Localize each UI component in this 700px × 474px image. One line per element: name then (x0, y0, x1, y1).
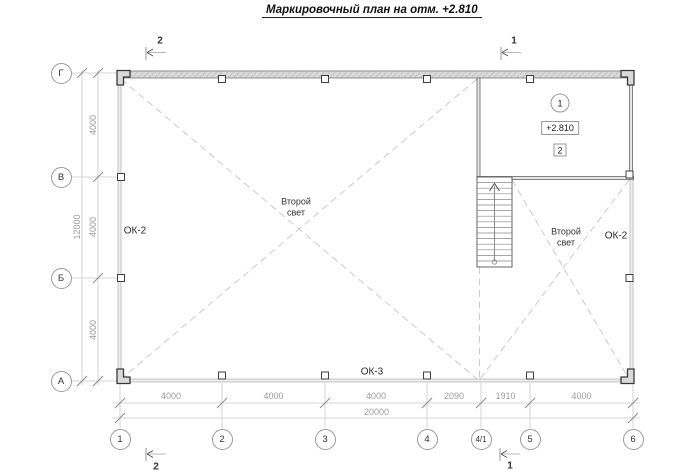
dim-left-seg-3: 4000 (88, 319, 98, 339)
axis-row-a: А (51, 371, 72, 392)
axis-col-1: 1 (110, 429, 131, 450)
dim-left-seg-2: 4000 (88, 217, 98, 237)
drawing-title: Маркировочный план на отм. +2.810 (262, 4, 482, 18)
section-arrow-top-left-icon (146, 47, 166, 60)
dim-bottom-seg-1: 4000 (161, 391, 181, 401)
section-number-top-right: 1 (511, 36, 517, 47)
section-arrow-bottom-left-icon (146, 448, 166, 461)
window-label-ok3: ОК-3 (361, 366, 384, 377)
plan-linework (0, 0, 700, 474)
dim-bottom-seg-3: 4000 (366, 391, 386, 401)
axis-col-5: 5 (520, 429, 541, 450)
dim-bottom-seg-4: 2090 (444, 391, 464, 401)
section-number-top-left: 2 (157, 36, 163, 47)
floor-plan-drawing: Маркировочный план на отм. +2.810 2 1 2 … (0, 0, 700, 474)
top-wall (118, 71, 634, 78)
section-arrow-top-right-icon (501, 47, 521, 60)
dim-left-total: 12000 (72, 214, 82, 239)
axis-col-4: 4 (417, 429, 438, 450)
section-number-bottom-right: 1 (507, 461, 513, 472)
section-arrow-bottom-right-icon (500, 448, 520, 461)
section-arrow-icons (146, 47, 521, 461)
dim-left-seg-1: 4000 (88, 115, 98, 135)
void-label-center-line2: свет (281, 207, 311, 218)
void-label-right-line1: Второй (551, 227, 581, 238)
void-label-right-line2: свет (551, 237, 581, 248)
window-label-ok2-right: ОК-2 (605, 231, 628, 242)
staircase (477, 177, 512, 267)
dim-bottom-seg-6: 4000 (571, 391, 591, 401)
dim-bottom-seg-5: 1910 (495, 391, 515, 401)
void-label-right: Второй свет (551, 227, 581, 248)
axis-col-2: 2 (212, 429, 233, 450)
room-elevation-tag: +2.810 (541, 121, 579, 135)
axis-col-4-1: 4/1 (471, 429, 492, 450)
section-number-bottom-left: 2 (153, 462, 159, 473)
axis-col-3: 3 (315, 429, 336, 450)
dim-bottom-total: 20000 (364, 407, 389, 417)
axis-row-v: В (51, 167, 72, 188)
dim-bottom-seg-2: 4000 (263, 391, 283, 401)
room-number-tag: 2 (554, 144, 567, 157)
void-label-center-line1: Второй (281, 197, 311, 208)
room-axis-tag: 1 (551, 94, 570, 113)
axis-row-g: Г (51, 63, 72, 84)
axis-col-6: 6 (623, 429, 644, 450)
window-label-ok2-left: ОК-2 (124, 226, 147, 237)
axis-row-b: Б (51, 268, 72, 289)
void-label-center: Второй свет (281, 197, 311, 218)
